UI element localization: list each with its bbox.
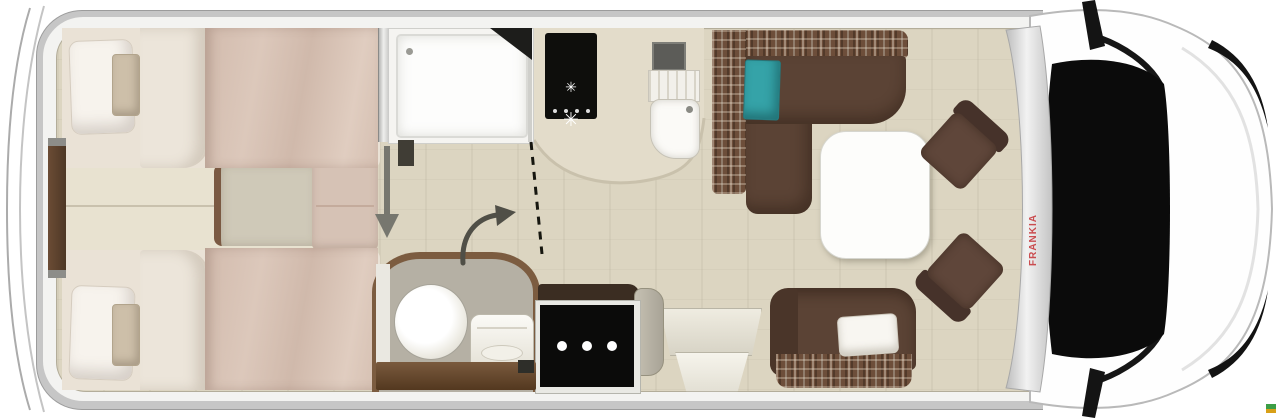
bed-top-duvet <box>140 28 209 168</box>
a-pillar-bottom <box>1100 334 1160 380</box>
door-hinge <box>518 360 534 373</box>
refrigerator <box>540 305 634 387</box>
wardrobe-cap <box>48 270 66 278</box>
appliance-knobs <box>557 341 567 351</box>
between-beds-step <box>214 164 324 246</box>
bed-bottom-duvet <box>140 250 209 390</box>
entrance-step-upper <box>660 308 762 356</box>
brand-label: FRANKIA <box>1028 156 1046 266</box>
bench-pillow <box>837 313 900 357</box>
bed-top-cushion <box>112 54 140 116</box>
teal-cushion <box>743 59 781 120</box>
cooktop: ✳ ✳ <box>545 33 597 119</box>
shower-door-post <box>398 140 414 166</box>
dinette-table <box>820 131 930 259</box>
cab-hood <box>1030 10 1272 408</box>
faucet-icon <box>686 106 693 113</box>
front-wheel-arch-top <box>1208 40 1268 128</box>
side-mirror-bottom <box>1082 368 1105 418</box>
watermark <box>1266 409 1276 413</box>
sofa-backrest-left <box>712 30 746 194</box>
toilet <box>394 284 468 360</box>
bathroom-cabinet <box>376 362 536 390</box>
shower-tray <box>396 34 528 138</box>
rear-outline-outer <box>7 8 30 410</box>
sink-drainer <box>648 70 700 102</box>
kitchen-window <box>652 42 686 71</box>
windshield <box>1045 60 1171 359</box>
bed-top-blanket <box>205 28 378 168</box>
front-wheel-arch-bottom <box>1208 290 1268 378</box>
a-pillar-top <box>1100 38 1160 84</box>
gas-burner-icon: ✳ <box>545 79 597 96</box>
bed-bottom-cushion <box>112 304 140 366</box>
bed-bottom-blanket <box>205 248 378 390</box>
hood-panel-line <box>1182 48 1258 370</box>
gas-burner-icon: ✳ <box>545 109 597 132</box>
bench-backrest <box>776 354 912 388</box>
bed-center-filler-cushion <box>312 160 378 250</box>
side-mirror-top <box>1082 0 1105 50</box>
shower-drain-icon <box>406 48 413 55</box>
wardrobe-cap <box>48 138 66 146</box>
motorhome-floorplan: ✳ ✳ <box>0 0 1280 418</box>
rear-wardrobe <box>48 146 66 270</box>
bedroom-partition-wall <box>378 28 389 142</box>
